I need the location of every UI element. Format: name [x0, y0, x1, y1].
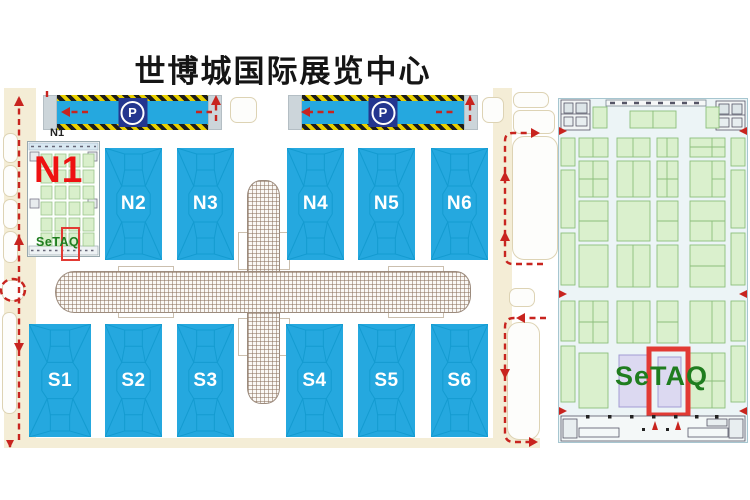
hall-n3: N3	[177, 148, 234, 260]
parking-slot	[3, 199, 18, 229]
corridor-horizontal	[55, 271, 471, 313]
parking-slot	[3, 165, 18, 197]
hall-s2: S2	[105, 324, 162, 437]
strip-endcap	[464, 95, 478, 130]
strip-endcap	[288, 95, 302, 130]
road-bottom	[4, 438, 540, 448]
hall-n1-tag: N1	[50, 127, 64, 139]
parking-slot	[512, 136, 558, 260]
hall-n5: N5	[358, 148, 415, 260]
parking-slot	[3, 133, 18, 163]
parking-slot	[509, 288, 535, 307]
parking-strip-left: P	[43, 95, 222, 130]
hall-n6: N6	[431, 148, 488, 260]
hall-n2: N2	[105, 148, 162, 260]
hall-s6: S6	[431, 324, 488, 437]
parking-slot	[2, 280, 24, 301]
parking-slot	[482, 97, 504, 123]
parking-strip-right: P	[288, 95, 478, 130]
strip-endcap	[208, 95, 222, 130]
hall-n4: N4	[287, 148, 344, 260]
hall-s4: S4	[286, 324, 343, 437]
parking-slot	[513, 110, 555, 134]
parking-slot	[230, 97, 257, 123]
hall-n1-big-label: N1	[34, 151, 83, 188]
hall-s1: S1	[29, 324, 91, 437]
exhibitor-label-overview: SeTAQ	[36, 235, 79, 249]
parking-icon: P	[369, 98, 398, 127]
strip-endcap	[43, 95, 57, 130]
exhibitor-label-detail: SeTAQ	[615, 361, 708, 392]
parking-slot	[507, 322, 540, 440]
parking-slot	[2, 312, 17, 414]
hall-s3: S3	[177, 324, 234, 437]
hall-s5: S5	[358, 324, 415, 437]
parking-icon: P	[118, 98, 147, 127]
page: 世博城国际展览中心 P	[0, 0, 750, 500]
parking-slot	[513, 92, 549, 108]
parking-slot	[3, 231, 18, 263]
